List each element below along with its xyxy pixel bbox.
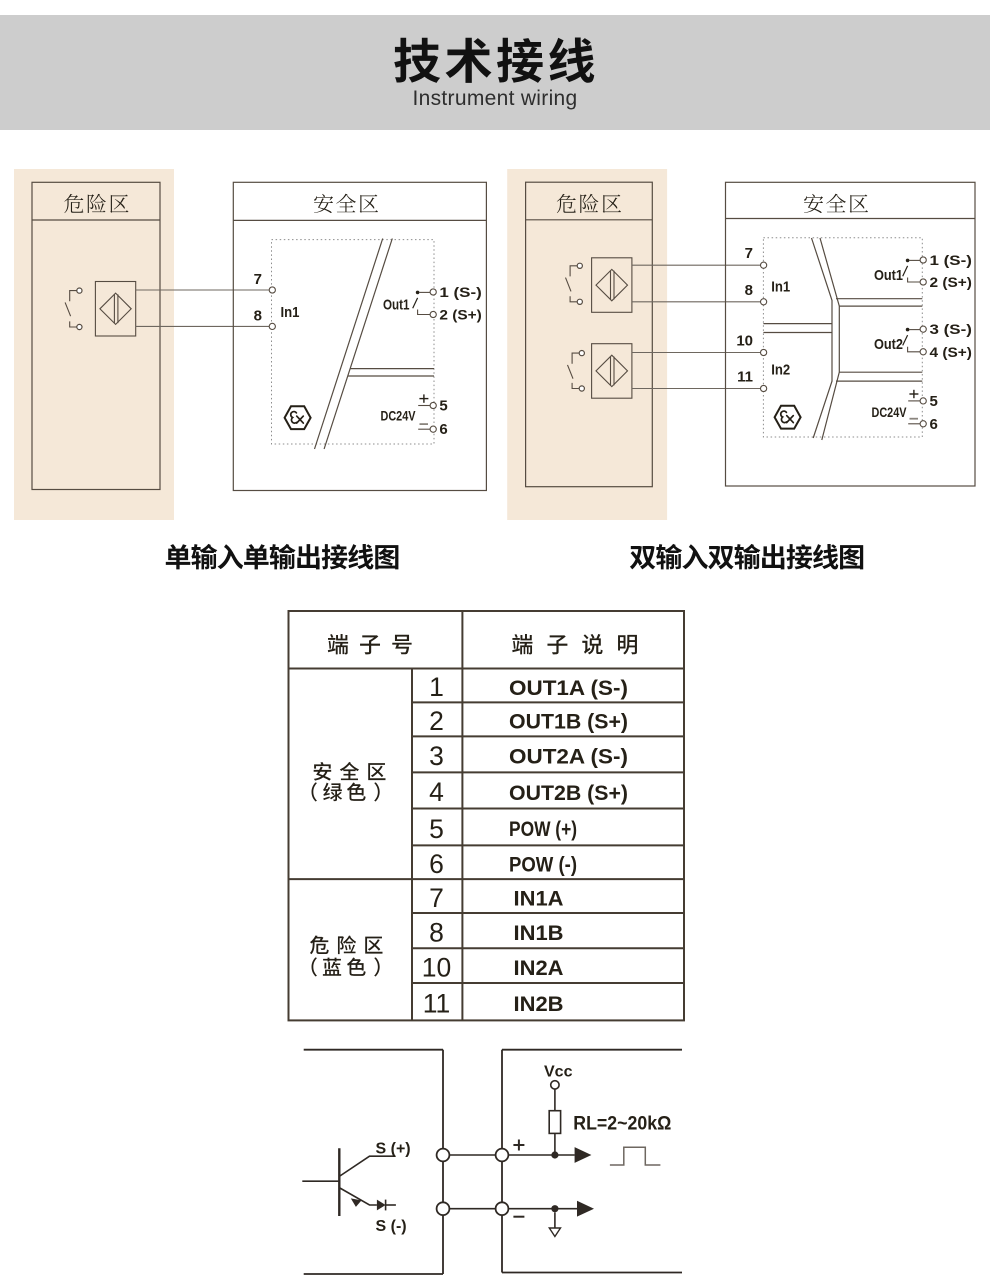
- svg-text:6: 6: [930, 416, 938, 433]
- svg-text:5: 5: [930, 393, 938, 410]
- svg-text:Out1: Out1: [874, 267, 903, 284]
- svg-text:8: 8: [254, 308, 262, 325]
- svg-text:8: 8: [745, 282, 753, 299]
- svg-text:In1: In1: [281, 304, 300, 321]
- svg-text:POW (+): POW (+): [509, 817, 577, 841]
- svg-text:10: 10: [736, 333, 753, 350]
- svg-text:IN1B: IN1B: [514, 921, 564, 945]
- svg-text:Out2: Out2: [874, 336, 903, 353]
- svg-text:POW (-): POW (-): [509, 853, 577, 877]
- svg-text:7: 7: [745, 245, 753, 262]
- svg-text:IN2A: IN2A: [514, 956, 564, 980]
- svg-text:1 (S-): 1 (S-): [439, 284, 481, 300]
- svg-text:7: 7: [429, 883, 444, 913]
- svg-text:11: 11: [737, 369, 753, 386]
- svg-text:4 (S+): 4 (S+): [930, 344, 972, 360]
- svg-text:5: 5: [429, 814, 444, 844]
- svg-text:4: 4: [429, 777, 444, 807]
- svg-text:In2: In2: [771, 362, 790, 379]
- svg-text:10: 10: [422, 952, 451, 982]
- svg-text:DC24V: DC24V: [872, 404, 908, 420]
- svg-text:OUT2B (S+): OUT2B (S+): [509, 781, 628, 805]
- svg-text:S (+): S (+): [376, 1141, 411, 1158]
- svg-text:Out1: Out1: [383, 297, 410, 314]
- svg-text:OUT1A (S-): OUT1A (S-): [509, 676, 628, 700]
- svg-text:7: 7: [254, 271, 262, 288]
- svg-text:1: 1: [429, 672, 444, 702]
- svg-text:DC24V: DC24V: [381, 408, 417, 424]
- svg-text:3 (S-): 3 (S-): [930, 321, 972, 337]
- svg-text:8: 8: [429, 917, 444, 947]
- svg-text:Vcc: Vcc: [544, 1064, 573, 1081]
- svg-text:2 (S+): 2 (S+): [439, 307, 481, 323]
- svg-text:OUT2A (S-): OUT2A (S-): [509, 745, 628, 769]
- svg-text:Instrument wiring: Instrument wiring: [413, 87, 578, 110]
- svg-text:6: 6: [429, 849, 444, 879]
- svg-text:2 (S+): 2 (S+): [930, 274, 972, 290]
- svg-text:OUT1B (S+): OUT1B (S+): [509, 710, 628, 734]
- svg-text:IN2B: IN2B: [514, 992, 564, 1016]
- svg-text:RL=2~20kΩ: RL=2~20kΩ: [573, 1114, 671, 1135]
- svg-text:2: 2: [429, 706, 444, 736]
- svg-text:6: 6: [439, 421, 447, 438]
- svg-text:1 (S-): 1 (S-): [930, 252, 972, 268]
- svg-text:S (-): S (-): [376, 1218, 407, 1235]
- svg-text:IN1A: IN1A: [514, 886, 564, 910]
- svg-text:5: 5: [439, 398, 447, 415]
- svg-text:3: 3: [429, 741, 444, 771]
- svg-text:In1: In1: [771, 279, 790, 296]
- svg-text:11: 11: [423, 989, 451, 1019]
